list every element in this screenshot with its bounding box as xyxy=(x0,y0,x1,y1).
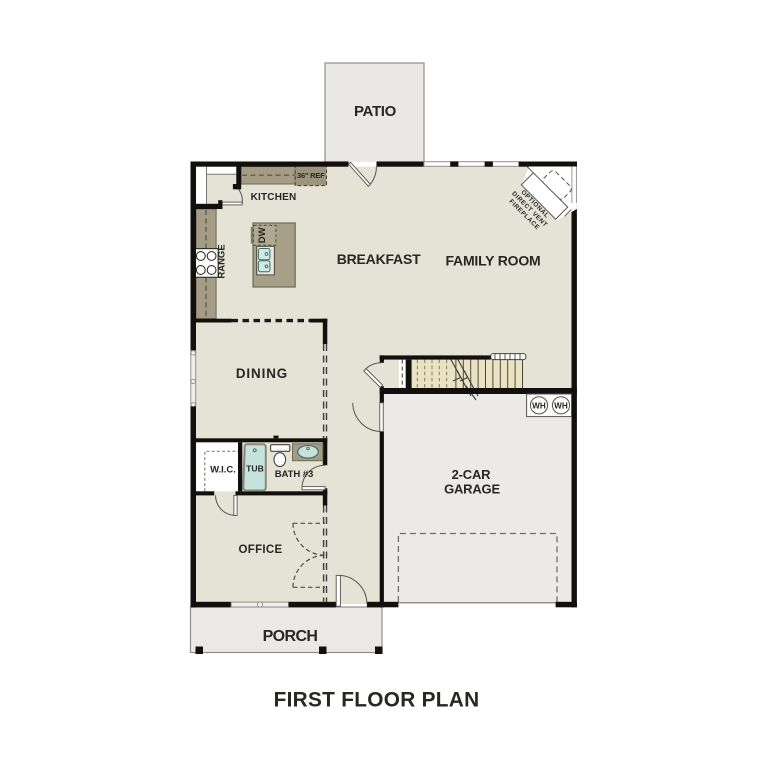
svg-text:DINING: DINING xyxy=(236,366,288,381)
svg-text:FAMILY ROOM: FAMILY ROOM xyxy=(445,252,540,268)
svg-text:RANGE: RANGE xyxy=(217,244,228,278)
svg-text:TUB: TUB xyxy=(246,463,264,473)
svg-text:2-CAR: 2-CAR xyxy=(452,467,492,482)
svg-text:KITCHEN: KITCHEN xyxy=(251,192,297,203)
svg-text:DW: DW xyxy=(257,227,268,243)
svg-text:PORCH: PORCH xyxy=(263,628,318,645)
svg-text:BATH #3: BATH #3 xyxy=(275,469,314,480)
svg-text:OFFICE: OFFICE xyxy=(239,544,283,556)
svg-text:36" REF: 36" REF xyxy=(297,171,325,180)
svg-text:BREAKFAST: BREAKFAST xyxy=(337,251,421,267)
svg-text:GARAGE: GARAGE xyxy=(444,482,500,497)
svg-text:PATIO: PATIO xyxy=(354,103,397,120)
svg-text:W.I.C.: W.I.C. xyxy=(210,465,236,476)
svg-text:WH: WH xyxy=(532,401,546,410)
svg-text:FIRST FLOOR PLAN: FIRST FLOOR PLAN xyxy=(274,689,480,712)
svg-text:WH: WH xyxy=(554,401,568,410)
